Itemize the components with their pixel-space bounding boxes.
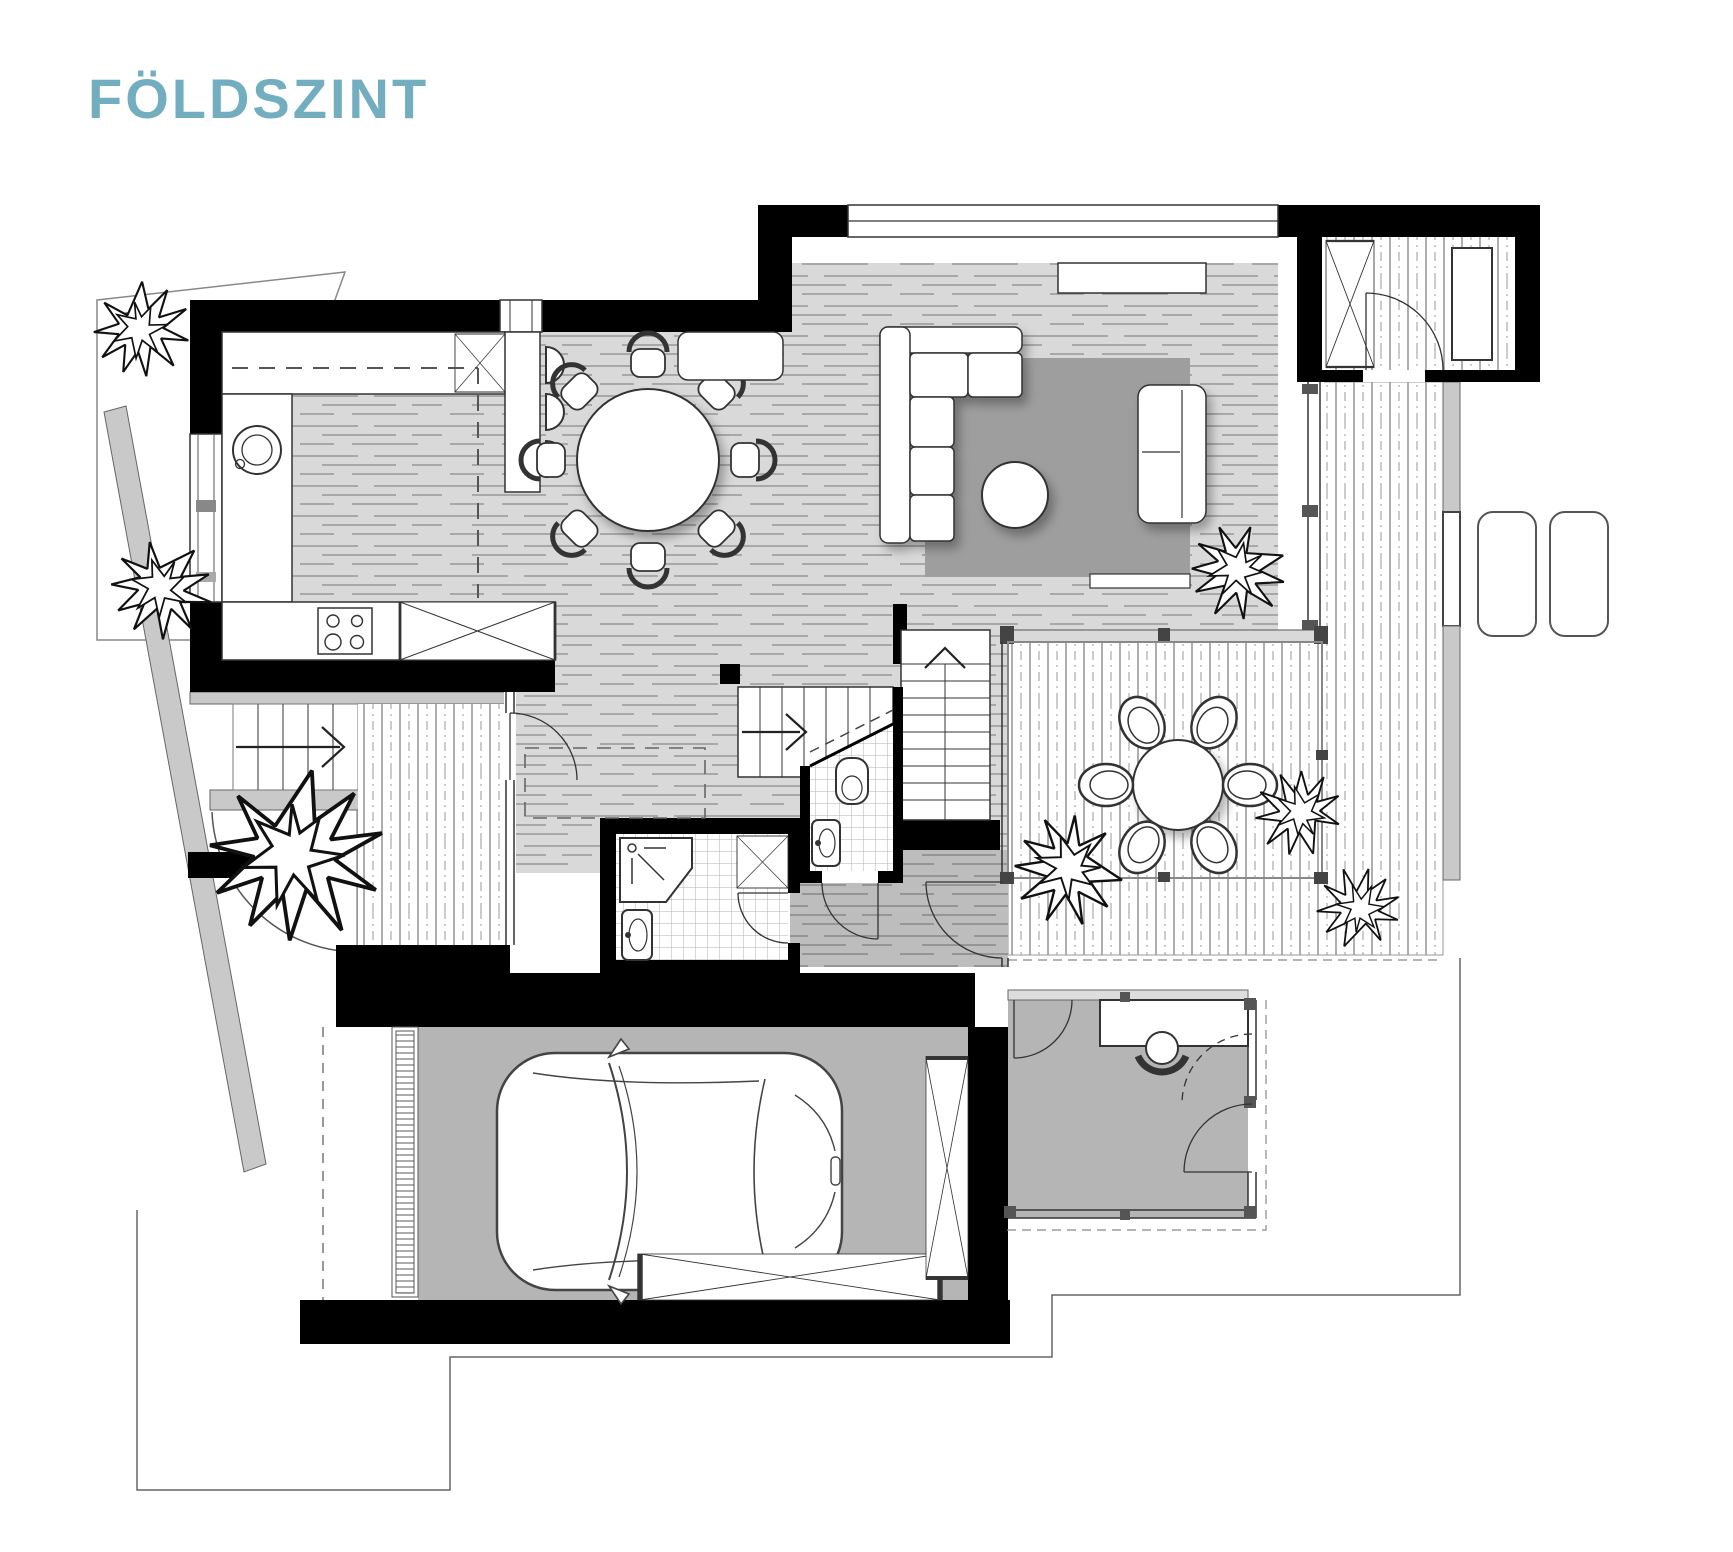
- dining-table: [577, 389, 719, 531]
- floorplan-page: FÖLDSZINT: [0, 0, 1733, 1552]
- bath-cabinet-icon: [737, 836, 788, 888]
- toilet-icon: [836, 758, 868, 804]
- sideboard: [678, 332, 783, 380]
- washbasin-icon: [812, 820, 840, 866]
- deck-edge: [1443, 382, 1460, 880]
- kitchen-north-window: [500, 300, 542, 332]
- window-bench: [1090, 574, 1190, 588]
- garage: [323, 1027, 968, 1304]
- tv-cabinet: [1058, 263, 1206, 293]
- floorplan-drawing: [0, 0, 1733, 1552]
- garage-door: [392, 1027, 418, 1297]
- kitchen-sink-icon: [233, 426, 281, 474]
- entry-wardrobe-icon: [1326, 241, 1374, 367]
- kitchen-base-cabinet-icon: [400, 602, 555, 660]
- entry-vestibule: [1322, 237, 1515, 382]
- stove-icon: [318, 608, 372, 654]
- kitchen-tall-cabinet-icon: [455, 334, 505, 392]
- living-east-glass-wall: [1302, 382, 1324, 632]
- shower-room: [600, 818, 800, 975]
- coffee-table: [982, 462, 1048, 528]
- garage-cabinet-icon: [926, 1058, 968, 1278]
- west-deck: [358, 704, 506, 947]
- entry-bench: [1452, 248, 1492, 360]
- north-window-large: [848, 205, 1278, 237]
- armchair: [1138, 385, 1206, 523]
- outdoor-table: [1133, 740, 1223, 830]
- garage-shelf-icon: [640, 1254, 940, 1300]
- sun-loungers: [1478, 512, 1608, 636]
- study-room: [1004, 990, 1266, 1230]
- shower-washbasin-icon: [622, 910, 652, 960]
